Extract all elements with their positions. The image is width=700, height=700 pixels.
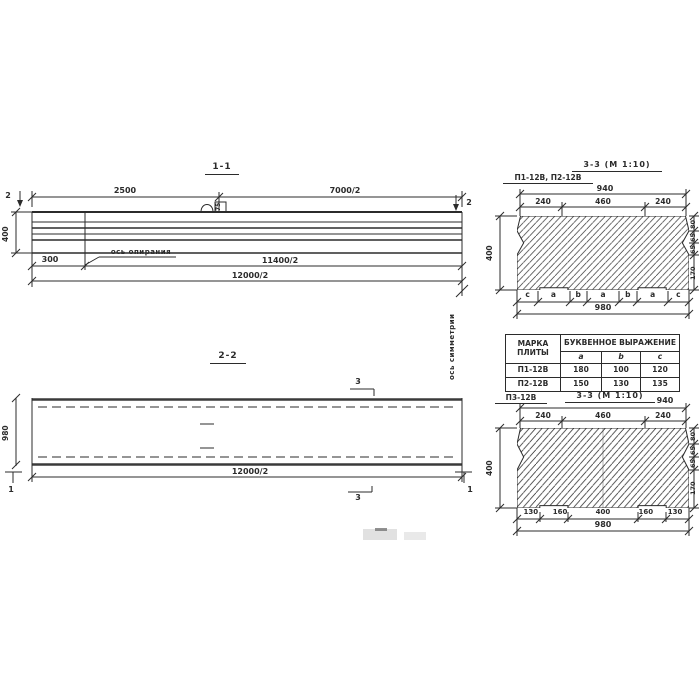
table-col-a: a bbox=[561, 352, 602, 364]
dim-240: 240 bbox=[520, 198, 566, 206]
row-mark: П2-12В bbox=[506, 378, 561, 392]
marks-table: МАРКА ПЛИТЫ БУКВЕННОЕ ВЫРАЖЕНИЕ a b c П1… bbox=[505, 334, 680, 392]
dim-400: 400 bbox=[576, 509, 631, 516]
marks-p1-p2-label: П1-12В, П2-12В bbox=[503, 174, 593, 184]
dim-400-top-section: 400 bbox=[486, 237, 494, 269]
dim-row-240-460-240-bottom: 240 460 240 bbox=[520, 412, 686, 420]
cut-mark-1-left: 1 bbox=[5, 486, 17, 494]
table-row: П2-12В 150 130 135 bbox=[506, 378, 680, 392]
section-3-3-top-title: 3-3 (М 1:10) bbox=[572, 161, 662, 172]
dim-980-top: 980 bbox=[570, 304, 636, 312]
dim-980-bottom: 980 bbox=[570, 521, 636, 529]
dim-80: 80 bbox=[690, 217, 697, 231]
bottom-dims-row: 130 160 400 160 130 bbox=[517, 509, 689, 516]
dim-12000-2-elevation: 12000/2 bbox=[205, 272, 295, 280]
dim-130: 130 bbox=[661, 509, 689, 516]
cut-mark-3-top: 3 bbox=[352, 378, 364, 386]
dim-940-top: 940 bbox=[560, 185, 650, 193]
dim-height-400: 400 bbox=[2, 214, 10, 254]
dim-460: 460 bbox=[566, 198, 640, 206]
dim-80: 80 bbox=[690, 429, 697, 444]
cross-section-p3 bbox=[517, 428, 689, 508]
cut-mark-1-right: 1 bbox=[464, 486, 476, 494]
lifting-loop-label: 75 bbox=[216, 202, 222, 212]
cell-c: 135 bbox=[641, 378, 680, 392]
letter-a: a bbox=[538, 291, 568, 299]
dim-65: 65 bbox=[690, 232, 697, 243]
cell-c: 120 bbox=[641, 364, 680, 378]
letter-a: a bbox=[588, 291, 618, 299]
section-1-1-title: 1-1 bbox=[205, 163, 239, 175]
letter-dims-row: c a b a b a c bbox=[517, 291, 689, 299]
cross-section-p1-p2 bbox=[517, 216, 689, 290]
dim-240: 240 bbox=[520, 412, 566, 420]
dim-65: 65 bbox=[690, 244, 697, 255]
dim-11400-2: 11400/2 bbox=[235, 257, 325, 265]
dim-170: 170 bbox=[690, 257, 697, 289]
dim-height-980: 980 bbox=[2, 412, 10, 454]
blueprint-canvas: 1-1 2500 7000/2 2 2 400 75 300 ось опира… bbox=[0, 0, 700, 700]
letter-c: c bbox=[517, 291, 538, 299]
cut-mark-2-right: 2 bbox=[463, 199, 475, 207]
cell-b: 130 bbox=[602, 378, 641, 392]
support-axis-label: ось опирания bbox=[101, 249, 181, 256]
dim-240: 240 bbox=[640, 198, 686, 206]
dim-160: 160 bbox=[630, 509, 661, 516]
dim-row-240-460-240-top: 240 460 240 bbox=[520, 198, 686, 206]
symmetry-axis-label: ось симметрии bbox=[449, 297, 456, 397]
cell-a: 180 bbox=[561, 364, 602, 378]
dim-170: 170 bbox=[690, 471, 697, 506]
dim-12000-2-plan: 12000/2 bbox=[205, 468, 295, 476]
letter-c: c bbox=[668, 291, 689, 299]
dim-65: 65 bbox=[690, 445, 697, 456]
dim-130: 130 bbox=[517, 509, 545, 516]
mark-p3-label: П3-12В bbox=[495, 394, 547, 404]
dim-160: 160 bbox=[545, 509, 576, 516]
cell-a: 150 bbox=[561, 378, 602, 392]
dim-65: 65 bbox=[690, 458, 697, 469]
dim-300: 300 bbox=[36, 256, 64, 264]
letter-a: a bbox=[638, 291, 668, 299]
row-mark: П1-12В bbox=[506, 364, 561, 378]
table-header-expression: БУКВЕННОЕ ВЫРАЖЕНИЕ bbox=[561, 335, 680, 352]
dim-240: 240 bbox=[640, 412, 686, 420]
letter-b: b bbox=[569, 291, 588, 299]
section-3-3-bottom-title: 3-3 (М 1:10) bbox=[565, 392, 655, 403]
scan-artifact bbox=[404, 532, 426, 540]
dim-7000-2: 7000/2 bbox=[290, 187, 400, 195]
scan-artifact bbox=[375, 528, 387, 531]
section-2-2-title: 2-2 bbox=[210, 352, 246, 364]
cut-mark-3-bottom: 3 bbox=[352, 494, 364, 502]
table-col-c: c bbox=[641, 352, 680, 364]
dim-2500: 2500 bbox=[60, 187, 190, 195]
cut-mark-2-left: 2 bbox=[2, 192, 14, 200]
table-col-b: b bbox=[602, 352, 641, 364]
dim-460: 460 bbox=[566, 412, 640, 420]
cell-b: 100 bbox=[602, 364, 641, 378]
dim-940-bottom: 940 bbox=[648, 397, 682, 405]
table-row: П1-12В 180 100 120 bbox=[506, 364, 680, 378]
table-header-mark: МАРКА ПЛИТЫ bbox=[506, 335, 561, 364]
dim-400-bottom-section: 400 bbox=[486, 452, 494, 484]
letter-b: b bbox=[618, 291, 637, 299]
